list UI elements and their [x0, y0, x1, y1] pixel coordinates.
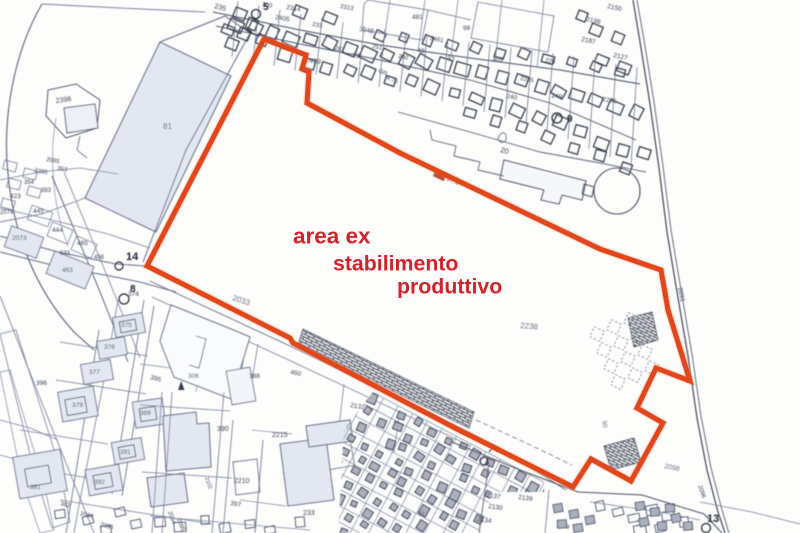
svg-text:2074: 2074 — [0, 210, 14, 216]
svg-text:354: 354 — [24, 180, 35, 186]
svg-text:481: 481 — [412, 14, 423, 21]
svg-text:produttivo: produttivo — [397, 275, 502, 299]
svg-text:233: 233 — [303, 510, 315, 517]
svg-text:390: 390 — [217, 426, 229, 433]
svg-text:465: 465 — [77, 240, 88, 247]
svg-text:2238: 2238 — [520, 321, 539, 332]
svg-text:2210: 2210 — [234, 478, 250, 485]
svg-text:391: 391 — [120, 449, 131, 456]
svg-text:444: 444 — [52, 227, 63, 234]
svg-text:445: 445 — [33, 208, 44, 215]
svg-text:306: 306 — [188, 373, 199, 380]
svg-text:2073: 2073 — [12, 235, 27, 242]
svg-text:423: 423 — [10, 193, 21, 200]
svg-text:13: 13 — [707, 513, 719, 525]
svg-text:14: 14 — [126, 251, 139, 263]
svg-text:area ex: area ex — [293, 224, 371, 249]
svg-text:376: 376 — [104, 344, 115, 351]
svg-text:377: 377 — [89, 369, 100, 376]
svg-text:463: 463 — [62, 267, 73, 274]
svg-text:stabilimento: stabilimento — [333, 252, 458, 276]
svg-text:379: 379 — [72, 402, 83, 409]
svg-text:9: 9 — [567, 114, 573, 125]
svg-text:383: 383 — [41, 188, 52, 194]
svg-text:8: 8 — [130, 284, 136, 295]
svg-text:5: 5 — [263, 2, 269, 13]
svg-text:381: 381 — [30, 484, 41, 491]
svg-text:2215: 2215 — [272, 432, 288, 439]
svg-text:81: 81 — [163, 122, 172, 131]
svg-text:456: 456 — [94, 255, 105, 261]
svg-text:533: 533 — [60, 251, 71, 257]
svg-text:389: 389 — [140, 410, 151, 417]
svg-text:98: 98 — [463, 25, 471, 32]
svg-text:392: 392 — [94, 479, 105, 486]
svg-text:375: 375 — [121, 322, 132, 329]
svg-text:396: 396 — [36, 380, 47, 387]
svg-text:388: 388 — [249, 373, 260, 380]
